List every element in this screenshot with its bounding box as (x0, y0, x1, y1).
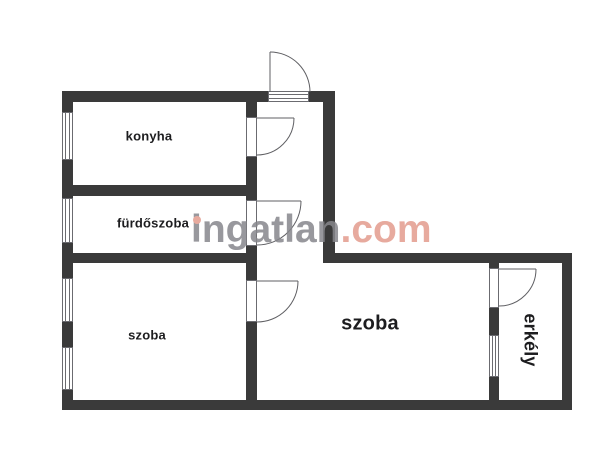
bathroom-room-divider (73, 253, 246, 263)
balcony-divider-seg2 (489, 308, 499, 335)
outer-wall-left-seg2 (62, 160, 73, 198)
room-door-arc (257, 281, 298, 322)
outer-wall-left-seg5 (62, 390, 73, 410)
balcony-divider-seg3 (489, 377, 499, 400)
outer-wall-left-seg4 (62, 322, 73, 347)
room-label-erkely: erkély (520, 313, 541, 366)
small-room-window-1 (62, 278, 73, 322)
inner-vertical-wall-seg1 (246, 91, 257, 117)
room-label-furdoszoba: fürdőszoba (117, 216, 189, 231)
outer-wall-left-seg1 (62, 91, 73, 112)
bathroom-window (62, 198, 73, 243)
room-label-konyha: konyha (126, 129, 173, 144)
outer-wall-bottom (62, 400, 572, 410)
watermark-tld: .com (341, 208, 432, 251)
kitchen-door-arc (257, 118, 294, 155)
kitchen-door-opening (246, 117, 257, 157)
entrance-threshold (268, 91, 309, 102)
kitchen-window (62, 112, 73, 160)
entrance-door-arc (270, 52, 310, 92)
small-room-window-2 (62, 347, 73, 390)
inner-vertical-wall-seg2 (246, 157, 257, 200)
floor-plan-canvas: konyha fürdőszoba szoba szoba erkély ing… (0, 0, 600, 468)
outer-wall-top-left (62, 91, 268, 102)
living-room-top-wall (323, 253, 572, 263)
watermark: ingatlan.com (191, 209, 432, 252)
watermark-i-dot-icon (193, 216, 201, 224)
room-label-szoba-small: szoba (128, 328, 166, 343)
outer-wall-left-seg3 (62, 243, 73, 278)
balcony-window (489, 335, 499, 377)
outer-wall-right (562, 253, 572, 410)
room-door-opening (246, 280, 257, 322)
balcony-door-arc (499, 269, 536, 306)
kitchen-bathroom-divider (73, 185, 246, 196)
room-label-szoba-large: szoba (341, 313, 399, 336)
balcony-door-opening (489, 268, 499, 308)
inner-vertical-wall-seg4 (246, 322, 257, 400)
watermark-brand: ingatlan (191, 208, 341, 251)
